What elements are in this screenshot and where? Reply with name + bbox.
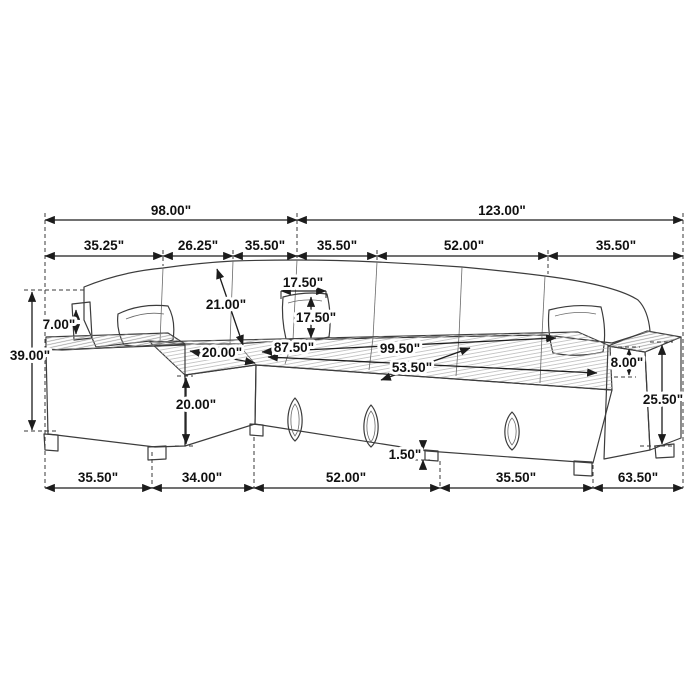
dim-pillow-width-label: 17.50" bbox=[283, 275, 323, 290]
dim-upper-seg2-label: 26.25" bbox=[178, 238, 218, 253]
dim-upper-seg4-label: 35.50" bbox=[317, 238, 357, 253]
dim-chaise-front-height-label: 20.00" bbox=[176, 397, 216, 412]
chaise-front bbox=[46, 345, 185, 447]
dim-upper-seg1-label: 35.25" bbox=[84, 238, 124, 253]
sofa-feet bbox=[44, 424, 674, 476]
dim-bottom-seg2-label: 34.00" bbox=[182, 470, 222, 485]
dim-overall-height-label: 39.00" bbox=[10, 348, 50, 363]
dim-upper-seg6-label: 35.50" bbox=[596, 238, 636, 253]
dim-overall-right-label: 123.00" bbox=[478, 203, 526, 218]
dim-bottom-seg5-label: 63.50" bbox=[618, 470, 658, 485]
dim-leg-height-label: 1.50" bbox=[389, 447, 422, 462]
dim-bottom-seg1-label: 35.50" bbox=[78, 470, 118, 485]
dim-backrest-diagonal-label: 21.00" bbox=[206, 297, 246, 312]
dim-upper-seg5-label: 52.00" bbox=[444, 238, 484, 253]
dim-upper-seg3-label: 35.50" bbox=[245, 238, 285, 253]
dim-overall-left-label: 98.00" bbox=[151, 203, 191, 218]
dim-sleeper-depth-label: 53.50" bbox=[392, 360, 432, 375]
dim-bottom-seg4-label: 35.50" bbox=[496, 470, 536, 485]
dimension-diagram: 98.00" 123.00" 35.25" 26.25" 35.50" 35.5… bbox=[0, 0, 700, 700]
dim-armrest-height-label: 25.50" bbox=[643, 392, 683, 407]
pull-loop-2 bbox=[364, 405, 378, 447]
pull-loop-3 bbox=[505, 412, 519, 450]
dim-chaise-seat-width-label: 20.00" bbox=[202, 345, 242, 360]
dim-bottom-seg3-label: 52.00" bbox=[326, 470, 366, 485]
dim-back-above-armrest-label: 7.00" bbox=[43, 317, 76, 332]
dim-overall-diagonal-label: 99.50" bbox=[380, 341, 420, 356]
dim-inner-length-label: 87.50" bbox=[274, 340, 314, 355]
sofa-illustration bbox=[44, 260, 681, 476]
pull-loop-1 bbox=[288, 398, 302, 441]
dim-pillow-height-label: 17.50" bbox=[296, 310, 336, 325]
dim-armrest-above-seat-label: 8.00" bbox=[611, 355, 644, 370]
